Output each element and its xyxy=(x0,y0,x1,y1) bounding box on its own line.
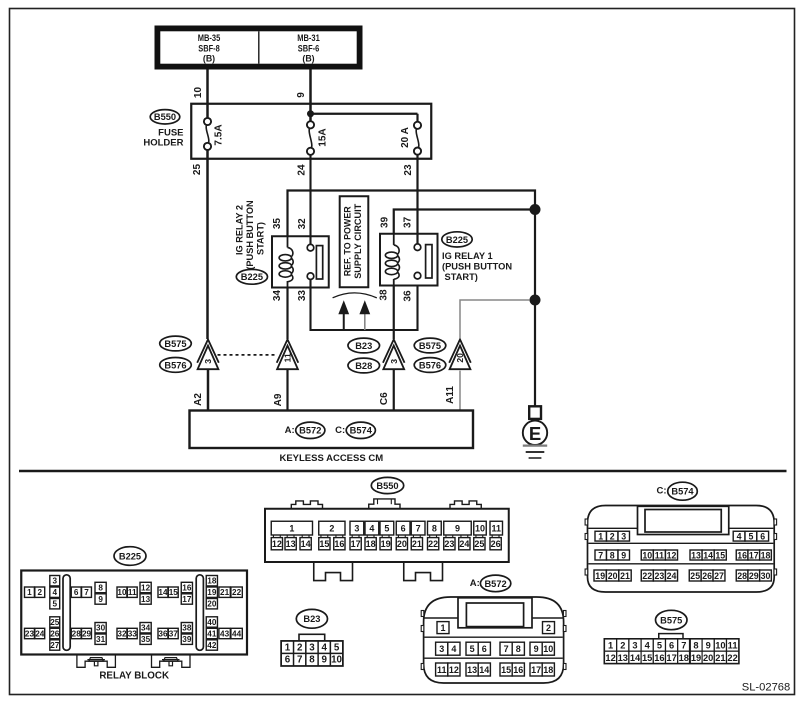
svg-text:36: 36 xyxy=(158,630,168,639)
svg-text:B576: B576 xyxy=(164,360,186,370)
svg-text:20 A: 20 A xyxy=(400,127,411,148)
svg-text:9: 9 xyxy=(322,655,328,666)
svg-text:11: 11 xyxy=(437,665,447,675)
svg-text:8: 8 xyxy=(516,644,521,654)
svg-text:1: 1 xyxy=(289,524,294,534)
svg-text:13: 13 xyxy=(141,595,151,604)
svg-text:(PUSH BUTTON: (PUSH BUTTON xyxy=(245,200,255,270)
svg-text:23: 23 xyxy=(403,164,414,176)
svg-text:8: 8 xyxy=(309,655,315,666)
svg-text:1: 1 xyxy=(440,623,445,633)
svg-text:B225: B225 xyxy=(119,551,141,561)
svg-text:3: 3 xyxy=(354,524,359,534)
svg-text:21: 21 xyxy=(220,588,230,597)
svg-text:5: 5 xyxy=(384,524,389,534)
svg-text:9: 9 xyxy=(621,551,626,561)
svg-text:35: 35 xyxy=(141,635,151,644)
svg-text:21: 21 xyxy=(715,653,725,663)
svg-text:(B): (B) xyxy=(302,54,314,64)
svg-text:19: 19 xyxy=(595,571,605,581)
svg-text:10: 10 xyxy=(715,641,725,651)
svg-text:7: 7 xyxy=(84,588,89,597)
svg-text:2: 2 xyxy=(329,524,334,534)
svg-text:4: 4 xyxy=(645,641,651,651)
svg-text:22: 22 xyxy=(642,571,652,581)
svg-text:2: 2 xyxy=(37,588,42,597)
svg-text:31: 31 xyxy=(96,635,106,644)
svg-text:8: 8 xyxy=(432,524,437,534)
svg-text:1: 1 xyxy=(608,641,613,651)
svg-text:3: 3 xyxy=(309,642,315,653)
svg-text:B225: B225 xyxy=(241,272,263,282)
svg-text:B574: B574 xyxy=(671,487,694,497)
svg-text:4: 4 xyxy=(451,644,456,654)
svg-text:17: 17 xyxy=(666,653,676,663)
svg-text:20: 20 xyxy=(455,353,465,363)
svg-text:12: 12 xyxy=(667,551,677,561)
svg-text:27: 27 xyxy=(714,571,724,581)
svg-text:B575: B575 xyxy=(419,341,441,351)
svg-text:16: 16 xyxy=(182,584,192,593)
svg-text:11: 11 xyxy=(655,551,664,561)
svg-text:15A: 15A xyxy=(317,128,328,146)
svg-text:25: 25 xyxy=(690,571,700,581)
svg-text:6: 6 xyxy=(482,644,487,654)
svg-text:B574: B574 xyxy=(350,426,373,436)
svg-text:3: 3 xyxy=(389,359,399,364)
svg-text:RELAY BLOCK: RELAY BLOCK xyxy=(99,670,169,681)
svg-text:MB-31: MB-31 xyxy=(297,33,320,43)
svg-text:12: 12 xyxy=(141,584,151,593)
svg-text:B572: B572 xyxy=(484,579,506,589)
svg-text:4: 4 xyxy=(322,642,328,653)
svg-text:40: 40 xyxy=(207,618,217,627)
svg-text:B550: B550 xyxy=(154,112,176,122)
svg-text:25: 25 xyxy=(50,618,60,627)
svg-text:11: 11 xyxy=(728,641,738,651)
svg-text:5: 5 xyxy=(334,642,340,653)
svg-text:5: 5 xyxy=(470,644,475,654)
svg-text:28: 28 xyxy=(72,630,82,639)
svg-text:18: 18 xyxy=(366,539,376,549)
svg-text:11: 11 xyxy=(128,588,137,597)
svg-text:14: 14 xyxy=(630,653,641,663)
svg-text:23: 23 xyxy=(444,539,454,549)
svg-text:3: 3 xyxy=(439,644,444,654)
svg-text:2: 2 xyxy=(610,532,615,542)
svg-text:9: 9 xyxy=(534,644,539,654)
svg-text:IG RELAY 2: IG RELAY 2 xyxy=(234,205,244,255)
svg-text:10: 10 xyxy=(117,588,127,597)
svg-text:43: 43 xyxy=(220,630,230,639)
svg-text:B575: B575 xyxy=(164,339,186,349)
svg-text:9: 9 xyxy=(706,641,711,651)
svg-text:33: 33 xyxy=(297,290,308,302)
svg-text:24: 24 xyxy=(667,571,677,581)
svg-text:18: 18 xyxy=(679,653,689,663)
svg-text:1: 1 xyxy=(285,642,291,653)
svg-text:7: 7 xyxy=(681,641,686,651)
svg-text:16: 16 xyxy=(737,551,747,561)
svg-text:17: 17 xyxy=(749,551,759,561)
svg-text:5: 5 xyxy=(748,532,753,542)
svg-text:1: 1 xyxy=(27,588,32,597)
svg-text:34: 34 xyxy=(272,290,283,302)
svg-text:KEYLESS ACCESS CM: KEYLESS ACCESS CM xyxy=(279,453,383,464)
svg-text:7: 7 xyxy=(504,644,509,654)
svg-text:19: 19 xyxy=(691,653,701,663)
svg-text:10: 10 xyxy=(331,655,342,666)
svg-text:11: 11 xyxy=(283,353,293,362)
svg-text:16: 16 xyxy=(334,539,344,549)
svg-text:13: 13 xyxy=(691,551,701,561)
svg-text:7: 7 xyxy=(297,655,303,666)
svg-text:39: 39 xyxy=(182,635,192,644)
svg-text:B23: B23 xyxy=(303,614,320,624)
svg-text:17: 17 xyxy=(351,539,361,549)
svg-text:23: 23 xyxy=(25,630,35,639)
svg-text:2: 2 xyxy=(297,642,303,653)
svg-text:44: 44 xyxy=(232,630,242,639)
svg-text:3: 3 xyxy=(52,577,57,586)
svg-text:22: 22 xyxy=(727,653,737,663)
svg-text:15: 15 xyxy=(319,539,329,549)
svg-text:21: 21 xyxy=(412,539,422,549)
svg-text:24: 24 xyxy=(35,630,45,639)
svg-text:B576: B576 xyxy=(419,360,441,370)
svg-text:18: 18 xyxy=(543,665,553,675)
svg-text:34: 34 xyxy=(141,624,151,633)
svg-text:A9: A9 xyxy=(273,393,284,406)
svg-text:17: 17 xyxy=(182,595,192,604)
svg-text:12: 12 xyxy=(449,665,459,675)
svg-text:16: 16 xyxy=(654,653,664,663)
svg-text:6: 6 xyxy=(760,532,765,542)
svg-text:6: 6 xyxy=(669,641,674,651)
svg-text:32: 32 xyxy=(297,218,308,230)
svg-text:22: 22 xyxy=(232,588,242,597)
svg-text:C6: C6 xyxy=(379,392,390,405)
svg-text:B550: B550 xyxy=(376,481,398,491)
svg-text:14: 14 xyxy=(158,588,168,597)
svg-text:13: 13 xyxy=(286,539,296,549)
svg-text:3: 3 xyxy=(621,532,626,542)
svg-text:30: 30 xyxy=(96,624,106,633)
svg-text:14: 14 xyxy=(479,665,489,675)
svg-text:A:: A: xyxy=(285,425,295,436)
svg-text:9: 9 xyxy=(455,524,460,534)
svg-text:5: 5 xyxy=(52,600,57,609)
svg-text:12: 12 xyxy=(605,653,615,663)
svg-text:8: 8 xyxy=(98,584,103,593)
svg-text:8: 8 xyxy=(610,551,615,561)
svg-text:26: 26 xyxy=(702,571,712,581)
svg-text:4: 4 xyxy=(52,588,57,597)
svg-text:26: 26 xyxy=(50,630,60,639)
svg-text:START): START) xyxy=(445,272,478,282)
svg-text:15: 15 xyxy=(169,588,179,597)
svg-text:B572: B572 xyxy=(299,426,321,436)
svg-text:32: 32 xyxy=(117,630,127,639)
svg-text:E: E xyxy=(529,423,541,444)
svg-text:B28: B28 xyxy=(355,361,372,371)
svg-text:4: 4 xyxy=(369,524,374,534)
svg-text:FUSE: FUSE xyxy=(158,127,183,138)
svg-text:20: 20 xyxy=(397,539,407,549)
svg-text:SL-02768: SL-02768 xyxy=(742,681,791,693)
svg-text:SBF-6: SBF-6 xyxy=(298,43,320,53)
svg-text:10: 10 xyxy=(475,524,485,534)
svg-text:7.5A: 7.5A xyxy=(214,124,225,145)
svg-text:SBF-8: SBF-8 xyxy=(198,43,220,53)
svg-text:SUPPLY CIRCUIT: SUPPLY CIRCUIT xyxy=(353,203,363,279)
svg-text:11: 11 xyxy=(491,524,501,534)
svg-text:6: 6 xyxy=(285,655,291,666)
svg-text:2: 2 xyxy=(620,641,625,651)
svg-text:B575: B575 xyxy=(660,615,682,625)
svg-text:8: 8 xyxy=(693,641,698,651)
svg-text:28: 28 xyxy=(737,571,747,581)
svg-text:B23: B23 xyxy=(355,341,372,351)
svg-text:13: 13 xyxy=(467,665,477,675)
svg-text:13: 13 xyxy=(618,653,628,663)
svg-text:3: 3 xyxy=(632,641,637,651)
svg-text:15: 15 xyxy=(715,551,725,561)
svg-text:41: 41 xyxy=(207,630,217,639)
svg-text:37: 37 xyxy=(169,630,179,639)
svg-text:24: 24 xyxy=(459,539,469,549)
svg-text:10: 10 xyxy=(543,644,553,654)
svg-text:38: 38 xyxy=(182,624,192,633)
svg-text:39: 39 xyxy=(380,216,391,228)
svg-text:3: 3 xyxy=(203,359,213,364)
svg-text:15: 15 xyxy=(642,653,652,663)
svg-text:14: 14 xyxy=(703,551,713,561)
svg-text:7: 7 xyxy=(598,551,603,561)
svg-text:START): START) xyxy=(255,222,265,255)
svg-text:7: 7 xyxy=(416,524,421,534)
svg-text:10: 10 xyxy=(193,87,204,99)
svg-text:9: 9 xyxy=(296,92,307,98)
svg-text:37: 37 xyxy=(403,216,414,228)
svg-text:6: 6 xyxy=(74,588,79,597)
svg-text:9: 9 xyxy=(98,595,103,604)
svg-text:35: 35 xyxy=(272,218,283,230)
svg-text:18: 18 xyxy=(761,551,771,561)
svg-text:6: 6 xyxy=(401,524,406,534)
svg-text:22: 22 xyxy=(428,539,438,549)
svg-text:(PUSH BUTTON: (PUSH BUTTON xyxy=(442,262,512,272)
svg-text:10: 10 xyxy=(642,551,652,561)
svg-text:30: 30 xyxy=(761,571,771,581)
svg-text:2: 2 xyxy=(546,623,551,633)
svg-text:24: 24 xyxy=(297,164,308,176)
svg-text:16: 16 xyxy=(513,665,523,675)
svg-text:B225: B225 xyxy=(446,235,468,245)
svg-text:42: 42 xyxy=(207,641,217,650)
svg-text:20: 20 xyxy=(207,600,217,609)
svg-text:29: 29 xyxy=(749,571,759,581)
svg-text:36: 36 xyxy=(403,290,414,302)
svg-text:1: 1 xyxy=(598,532,603,542)
svg-text:4: 4 xyxy=(737,532,742,542)
svg-text:IG RELAY 1: IG RELAY 1 xyxy=(442,251,493,261)
svg-text:25: 25 xyxy=(192,164,203,176)
svg-text:18: 18 xyxy=(207,577,217,586)
svg-text:C:: C: xyxy=(335,425,345,436)
svg-text:5: 5 xyxy=(657,641,662,651)
svg-text:HOLDER: HOLDER xyxy=(143,138,183,149)
svg-text:14: 14 xyxy=(301,539,311,549)
svg-text:12: 12 xyxy=(272,539,282,549)
svg-text:(B): (B) xyxy=(203,54,215,64)
svg-text:A11: A11 xyxy=(445,386,456,404)
svg-text:20: 20 xyxy=(608,571,618,581)
svg-text:20: 20 xyxy=(703,653,713,663)
svg-text:A2: A2 xyxy=(193,393,204,406)
svg-text:15: 15 xyxy=(501,665,511,675)
svg-text:26: 26 xyxy=(491,539,501,549)
svg-text:21: 21 xyxy=(620,571,630,581)
svg-text:25: 25 xyxy=(474,539,484,549)
svg-text:23: 23 xyxy=(655,571,665,581)
svg-text:38: 38 xyxy=(378,289,389,301)
svg-text:19: 19 xyxy=(381,539,391,549)
svg-text:27: 27 xyxy=(50,641,60,650)
svg-text:17: 17 xyxy=(531,665,541,675)
svg-text:19: 19 xyxy=(207,588,217,597)
svg-text:29: 29 xyxy=(82,630,92,639)
svg-text:MB-35: MB-35 xyxy=(198,33,221,43)
svg-text:A:: A: xyxy=(470,578,480,589)
svg-text:C:: C: xyxy=(656,486,666,497)
svg-text:REF. TO POWER: REF. TO POWER xyxy=(342,206,352,277)
svg-text:33: 33 xyxy=(128,630,138,639)
